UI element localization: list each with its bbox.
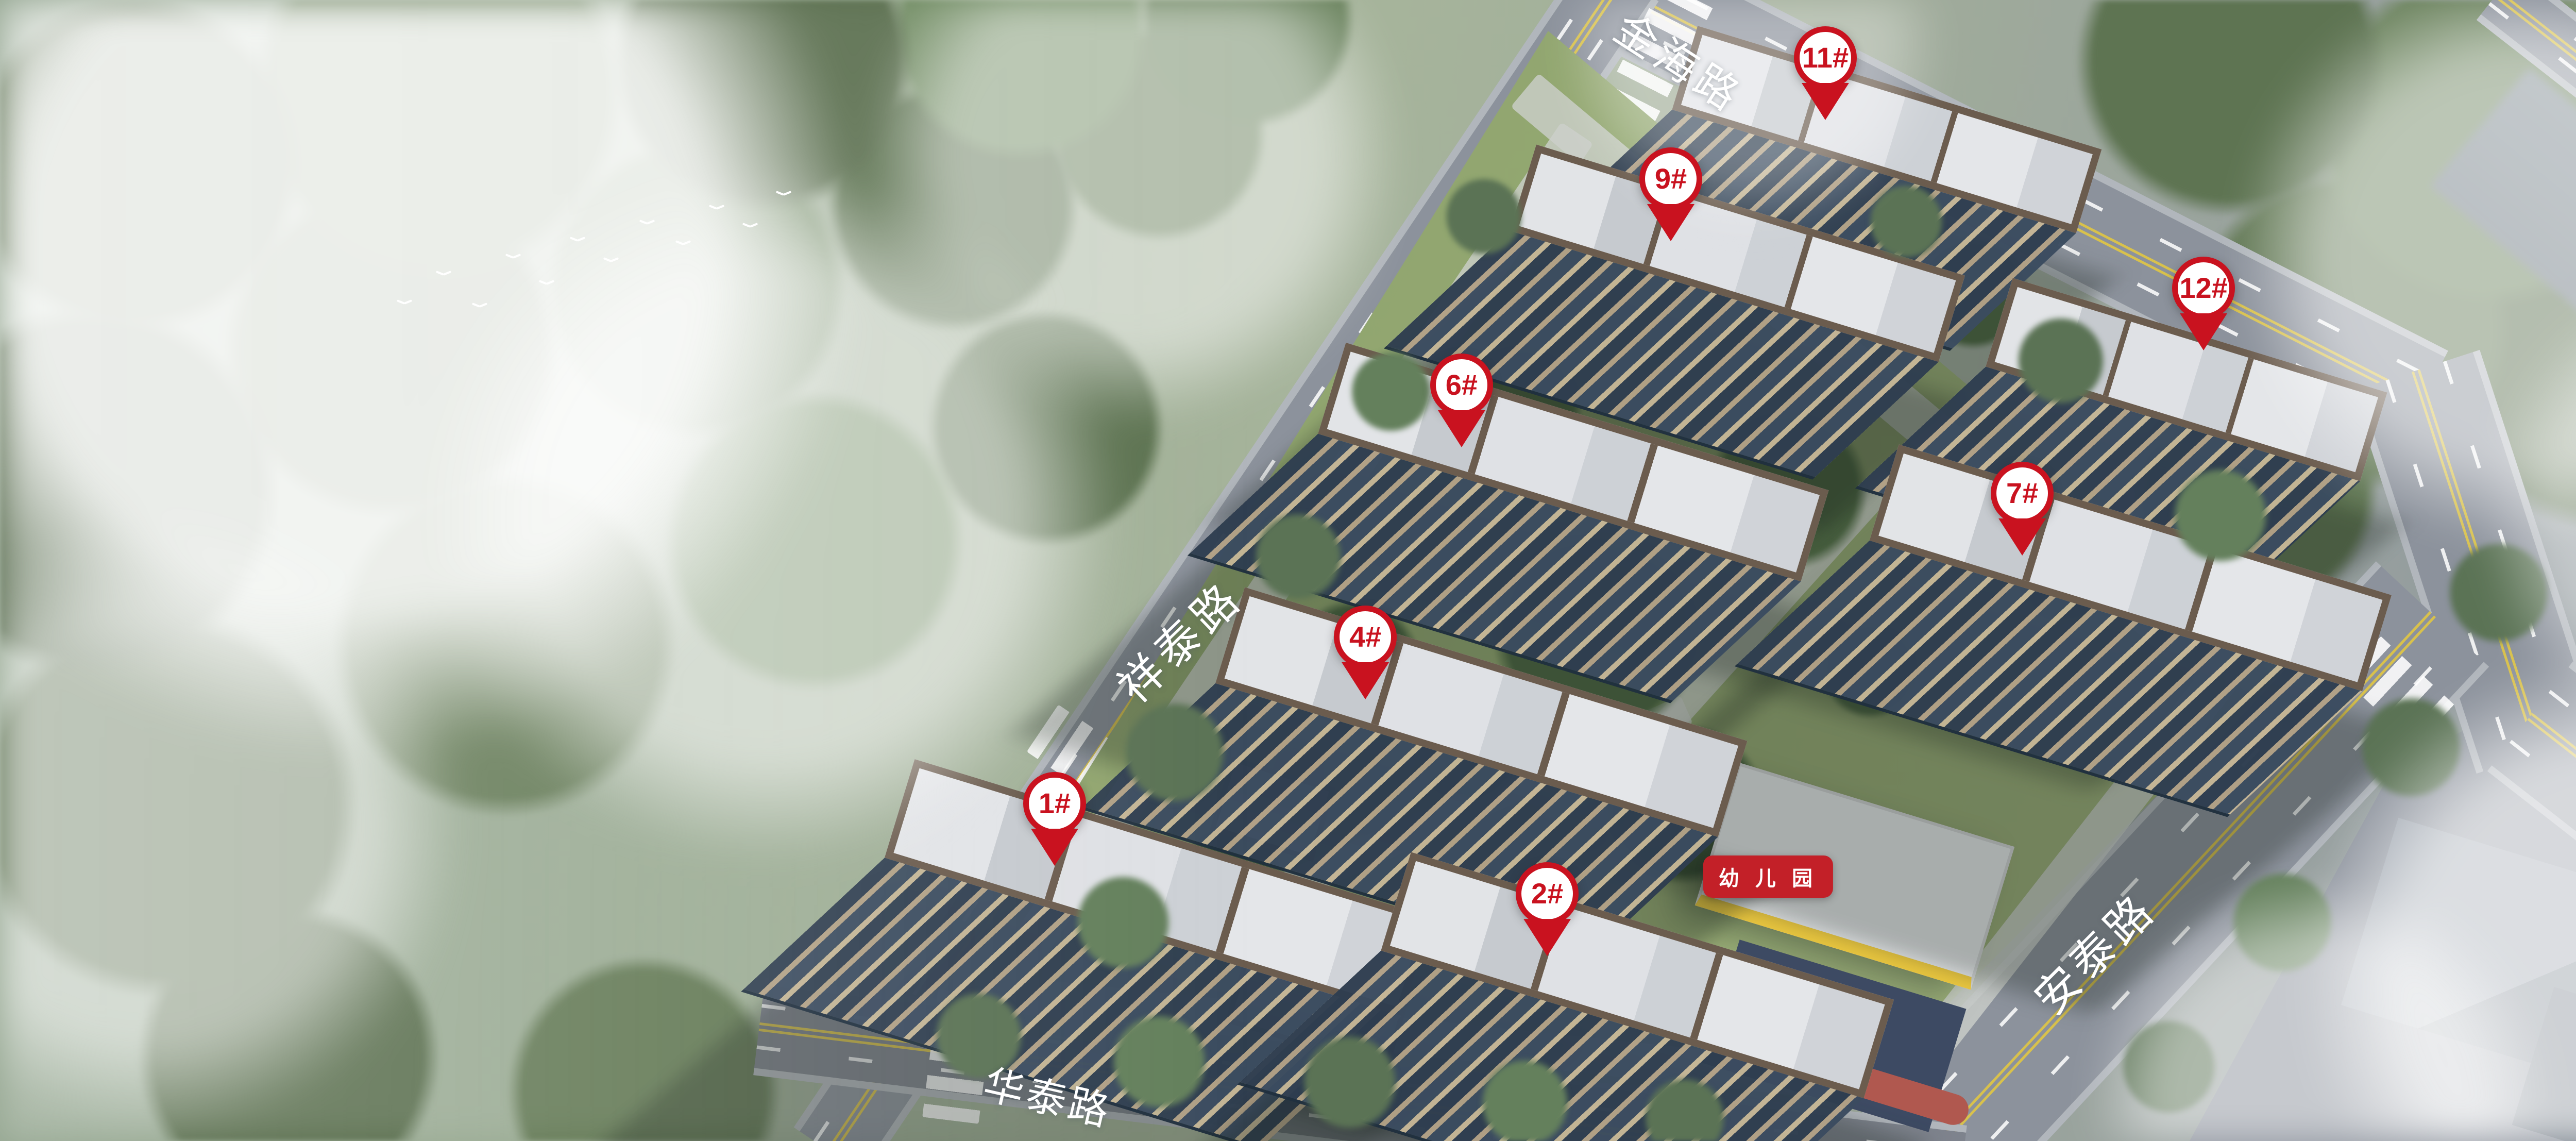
aerial-rendering: 金海路 祥泰路 安泰路 华泰路 1# 2# 4# 6# 7# 9# 11# 12… [0, 0, 2576, 1141]
marker-label: 2# [1531, 879, 1563, 908]
marker-label: 6# [1446, 371, 1478, 399]
marker-circle: 1# [1023, 772, 1086, 835]
pin-pointer-icon [1998, 518, 2046, 556]
marker-circle: 9# [1639, 147, 1702, 210]
marker-label: 9# [1655, 164, 1687, 193]
marker-label: 12# [2179, 274, 2227, 303]
bird-icon [539, 280, 554, 286]
marker-circle: 11# [1794, 26, 1857, 89]
bird-icon [397, 299, 412, 306]
marker-circle: 7# [1991, 462, 2054, 525]
pin-pointer-icon [1523, 919, 1571, 956]
pin-pointer-icon [2180, 313, 2227, 350]
marker-12: 12# [2172, 257, 2235, 350]
bird-icon [505, 254, 521, 260]
bird-icon [436, 271, 451, 277]
bird-icon [603, 257, 619, 263]
marker-label: 1# [1039, 789, 1071, 818]
bird-icon [472, 303, 487, 309]
bird-icon [570, 237, 585, 243]
marker-circle: 6# [1430, 354, 1493, 416]
pin-pointer-icon [1647, 204, 1694, 241]
marker-circle: 4# [1334, 606, 1397, 668]
pin-pointer-icon [1031, 829, 1078, 866]
marker-label: 11# [1802, 43, 1849, 72]
marker-4: 4# [1334, 606, 1397, 699]
bird-icon [675, 240, 691, 246]
marker-label: 7# [2006, 479, 2038, 508]
marker-circle: 12# [2172, 257, 2235, 320]
marker-7: 7# [1991, 462, 2054, 556]
flying-birds [0, 0, 2576, 1141]
pin-pointer-icon [1438, 410, 1485, 447]
marker-label: 4# [1349, 623, 1381, 651]
bird-icon [742, 223, 758, 229]
pin-pointer-icon [1342, 662, 1389, 699]
bird-icon [776, 191, 791, 197]
pin-pointer-icon [1802, 83, 1849, 120]
marker-2: 2# [1516, 862, 1579, 956]
marker-1: 1# [1023, 772, 1086, 866]
bird-icon [709, 205, 724, 211]
marker-11: 11# [1794, 26, 1857, 120]
marker-circle: 2# [1516, 862, 1579, 925]
bird-icon [639, 220, 655, 226]
marker-9: 9# [1639, 147, 1702, 241]
kindergarten-badge: 幼 儿 园 [1703, 855, 1833, 898]
marker-6: 6# [1430, 354, 1493, 447]
